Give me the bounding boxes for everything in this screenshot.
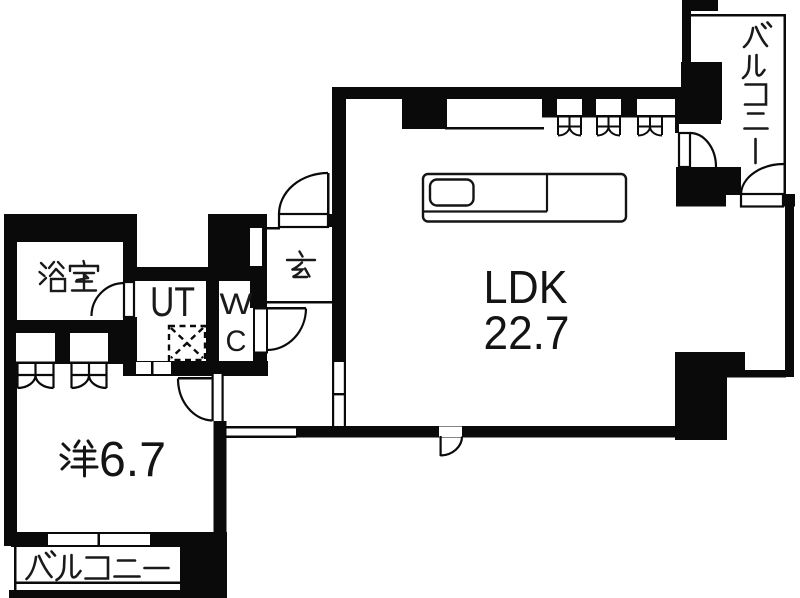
svg-text:22.7: 22.7 <box>484 306 570 359</box>
svg-text:C: C <box>226 325 247 358</box>
svg-text:6.7: 6.7 <box>99 433 166 487</box>
svg-text:UT: UT <box>150 278 195 325</box>
svg-text:W: W <box>220 288 254 321</box>
